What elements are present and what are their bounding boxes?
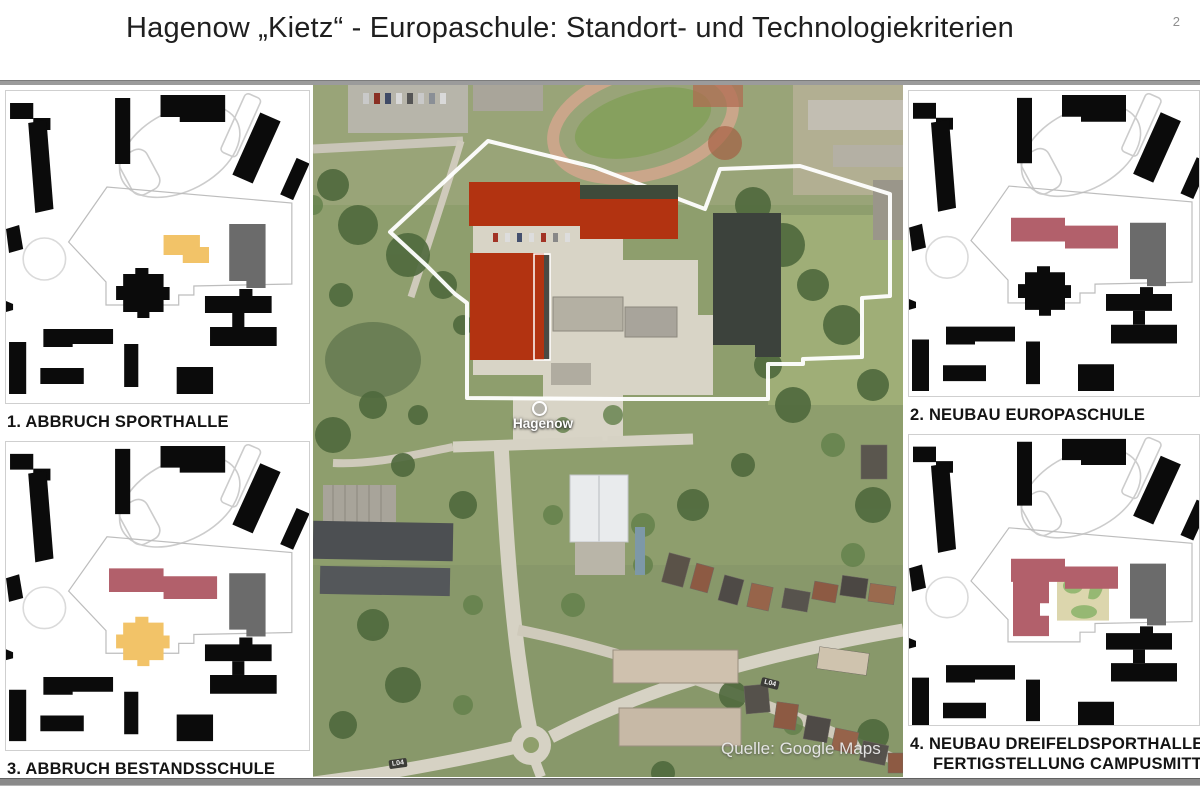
left-column: 1. ABBRUCH SPORTHALLE 3. ABBRUCH BESTAND… (5, 90, 310, 786)
page-title: Hagenow „Kietz“ - Europaschule: Standort… (0, 12, 1140, 45)
panel-2-label: 2. NEUBAU EUROPASCHULE (908, 397, 1200, 432)
dark-roof-building (713, 213, 781, 357)
panel-4-label: 4. NEUBAU DREIFELDSPORTHALLE/ FERTIGSTEL… (908, 726, 1200, 781)
bottom-divider (0, 778, 1200, 786)
demolition-overlay-south (470, 253, 544, 360)
right-column: 2. NEUBAU EUROPASCHULE 4. NEUBAU DREIFEL… (908, 90, 1200, 780)
bestandsschule-demolition-highlight (116, 617, 170, 666)
bestandsschule-building (1018, 266, 1071, 316)
new-sporthalle-highlight (1013, 580, 1049, 636)
bestandsschule-building (116, 268, 170, 318)
site-plan-2 (908, 90, 1200, 397)
new-school-building (109, 568, 217, 599)
site-plan-1 (5, 90, 310, 404)
site-plan-4 (908, 434, 1200, 726)
sporthalle-demolition-highlight (164, 235, 209, 263)
site-plan-3 (5, 441, 310, 751)
panel-neubau-dreifeldsporthalle: 4. NEUBAU DREIFELDSPORTHALLE/ FERTIGSTEL… (908, 434, 1200, 781)
panel-neubau-europaschule: 2. NEUBAU EUROPASCHULE (908, 90, 1200, 432)
slide: Hagenow „Kietz“ - Europaschule: Standort… (0, 0, 1200, 800)
panel-1-label: 1. ABBRUCH SPORTHALLE (5, 404, 310, 439)
page-number: 2 (1173, 14, 1180, 29)
new-school-highlight (1011, 218, 1118, 249)
panel-abbruch-bestandsschule: 3. ABBRUCH BESTANDSSCHULE (5, 441, 310, 786)
panel-abbruch-sporthalle: 1. ABBRUCH SPORTHALLE (5, 90, 310, 439)
aerial-map: Hagenow Quelle: Google Maps L04 L04 (313, 85, 903, 777)
